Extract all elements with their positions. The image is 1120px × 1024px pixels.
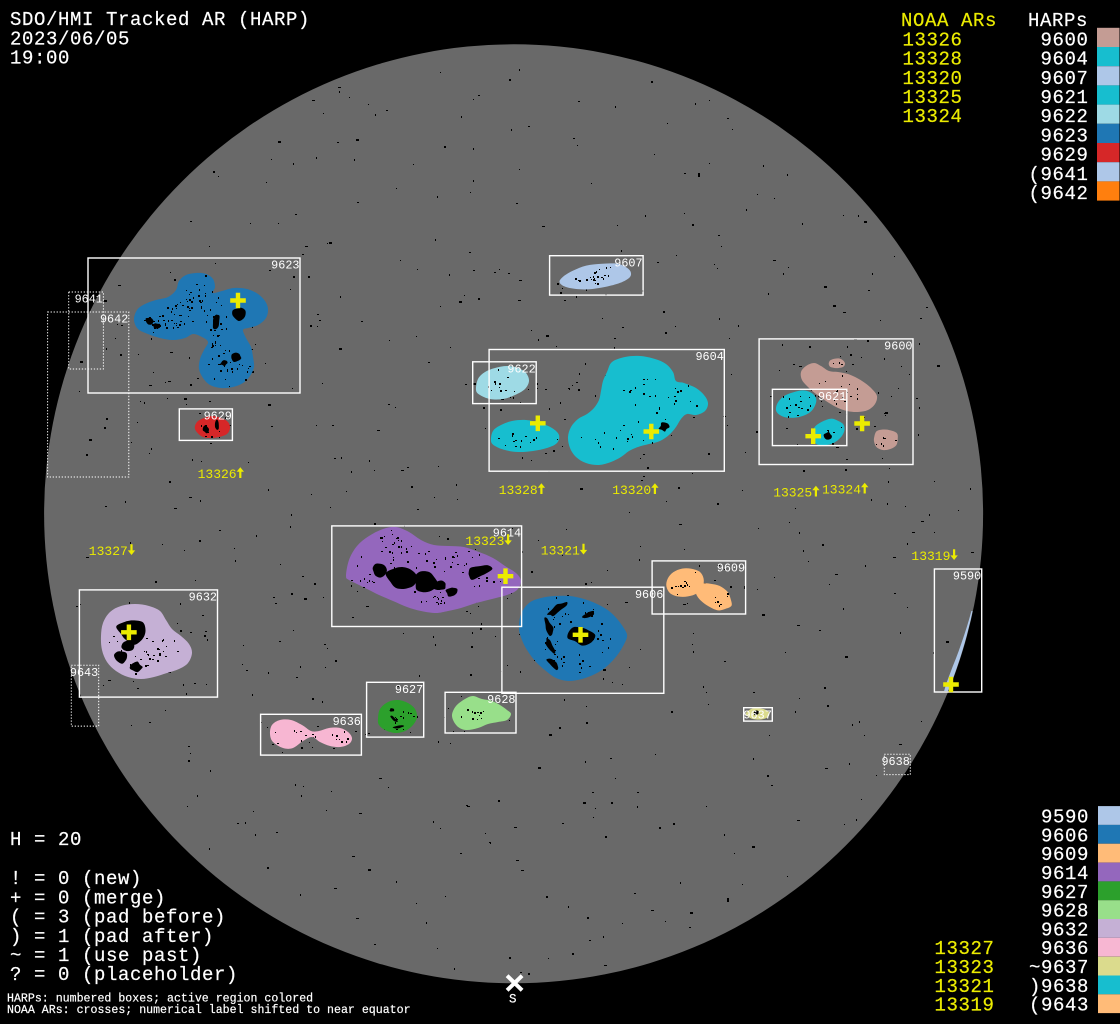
svg-text:13327: 13327 — [89, 544, 128, 559]
svg-text:13328: 13328 — [499, 483, 538, 498]
svg-text:(9642: (9642 — [1028, 183, 1088, 205]
svg-text:9643: 9643 — [70, 666, 98, 680]
svg-text:9623: 9623 — [271, 259, 299, 273]
svg-text:9638: 9638 — [881, 755, 909, 769]
svg-text:9607: 9607 — [614, 256, 642, 270]
svg-text:13319: 13319 — [934, 995, 994, 1017]
svg-text:9641: 9641 — [75, 293, 103, 307]
svg-text:13326: 13326 — [198, 467, 237, 482]
svg-text:9590: 9590 — [953, 570, 981, 584]
svg-text:9627: 9627 — [395, 683, 423, 697]
svg-text:? = 0 (placeholder): ? = 0 (placeholder) — [10, 964, 238, 986]
svg-text:H = 20: H = 20 — [10, 829, 82, 851]
svg-text:S: S — [509, 993, 517, 1007]
svg-text:13321: 13321 — [541, 544, 580, 559]
svg-text:9606: 9606 — [635, 588, 663, 602]
svg-text:19:00: 19:00 — [10, 48, 70, 70]
svg-text:9632: 9632 — [189, 591, 217, 605]
svg-text:9604: 9604 — [695, 350, 723, 364]
svg-text:9628: 9628 — [487, 693, 515, 707]
svg-text:9621: 9621 — [818, 390, 846, 404]
svg-text:9637: 9637 — [743, 708, 771, 722]
svg-text:(9643: (9643 — [1029, 995, 1089, 1017]
svg-text:NOAA ARs: crosses; numerical l: NOAA ARs: crosses; numerical label shift… — [7, 1004, 411, 1017]
svg-text:13320: 13320 — [612, 483, 651, 498]
svg-text:13324: 13324 — [902, 106, 962, 128]
svg-text:13325: 13325 — [773, 486, 812, 501]
svg-text:9636: 9636 — [333, 715, 361, 729]
svg-text:9622: 9622 — [507, 362, 535, 376]
svg-text:13319: 13319 — [911, 549, 950, 564]
svg-text:9609: 9609 — [717, 562, 745, 576]
svg-text:9629: 9629 — [204, 410, 232, 424]
svg-text:13323: 13323 — [465, 534, 504, 549]
svg-text:9600: 9600 — [884, 340, 912, 354]
svg-text:9642: 9642 — [100, 313, 128, 327]
svg-text:13324: 13324 — [822, 483, 861, 498]
